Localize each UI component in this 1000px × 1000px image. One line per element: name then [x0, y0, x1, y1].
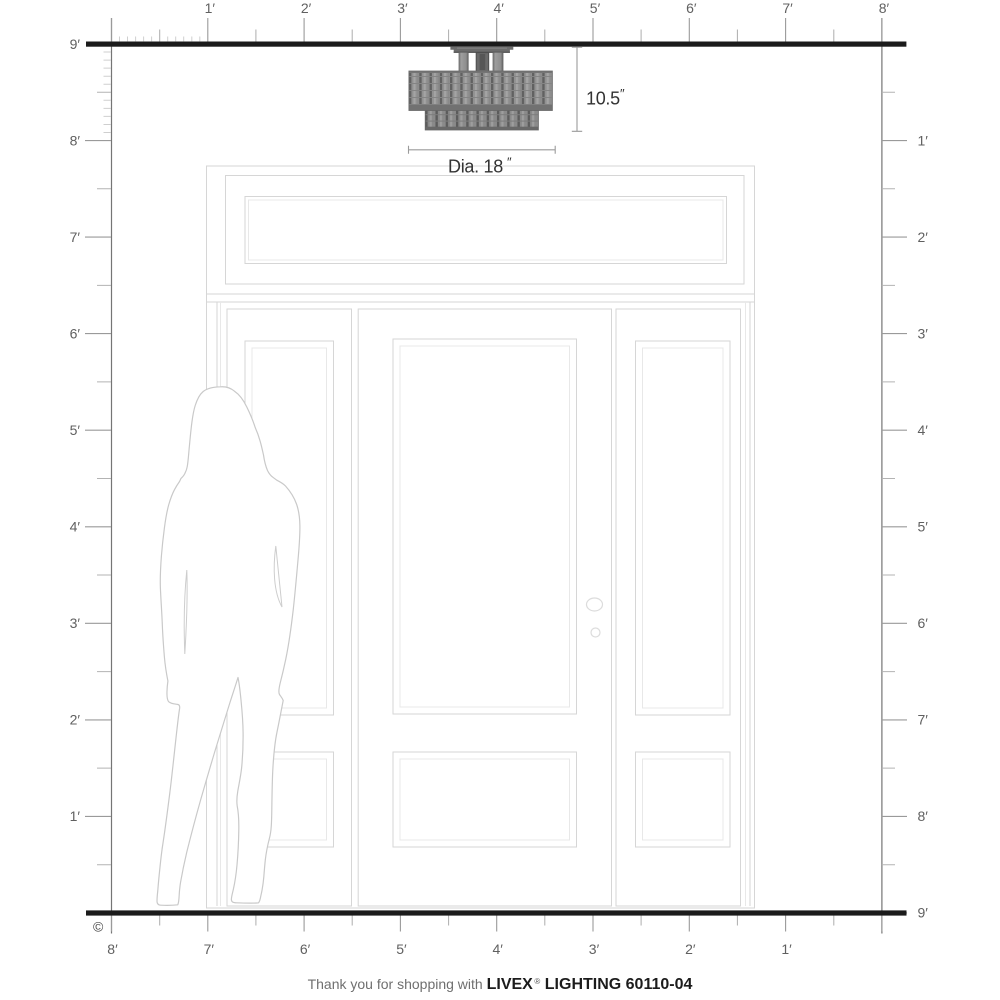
svg-text:8′: 8′	[107, 941, 118, 957]
svg-text:6′: 6′	[686, 0, 697, 16]
svg-text:8′: 8′	[918, 808, 929, 824]
svg-text:1′: 1′	[205, 0, 216, 16]
svg-text:8′: 8′	[879, 0, 890, 16]
svg-text:″: ″	[620, 86, 625, 101]
svg-text:4′: 4′	[918, 422, 929, 438]
svg-text:5′: 5′	[918, 519, 929, 535]
svg-text:4′: 4′	[493, 0, 504, 16]
svg-text:7′: 7′	[70, 229, 81, 245]
svg-text:5′: 5′	[70, 422, 81, 438]
svg-text:3′: 3′	[918, 325, 929, 341]
svg-text:5′: 5′	[396, 941, 407, 957]
svg-text:6′: 6′	[918, 615, 929, 631]
svg-text:6′: 6′	[300, 941, 311, 957]
svg-text:6′: 6′	[70, 325, 81, 341]
svg-text:3′: 3′	[397, 0, 408, 16]
svg-text:4′: 4′	[70, 519, 81, 535]
svg-text:4′: 4′	[492, 941, 503, 957]
svg-text:3′: 3′	[70, 615, 81, 631]
svg-text:9′: 9′	[70, 36, 81, 52]
svg-text:8′: 8′	[70, 132, 81, 148]
svg-text:1′: 1′	[70, 808, 81, 824]
svg-text:2′: 2′	[301, 0, 312, 16]
svg-text:Dia. 18: Dia. 18	[448, 157, 503, 177]
svg-text:10.5: 10.5	[586, 89, 620, 109]
svg-text:2′: 2′	[918, 229, 929, 245]
svg-text:7′: 7′	[782, 0, 793, 16]
svg-text:″: ″	[507, 155, 512, 170]
svg-text:3′: 3′	[589, 941, 600, 957]
svg-text:9′: 9′	[918, 905, 929, 921]
svg-text:2′: 2′	[685, 941, 696, 957]
svg-text:1′: 1′	[781, 941, 792, 957]
svg-text:Thank you for shopping with LI: Thank you for shopping with LIVEX ® LIGH…	[308, 976, 693, 993]
svg-text:©: ©	[93, 919, 104, 935]
svg-text:7′: 7′	[918, 712, 929, 728]
svg-text:2′: 2′	[70, 712, 81, 728]
svg-text:1′: 1′	[918, 132, 929, 148]
svg-text:5′: 5′	[590, 0, 601, 16]
svg-text:7′: 7′	[204, 941, 215, 957]
